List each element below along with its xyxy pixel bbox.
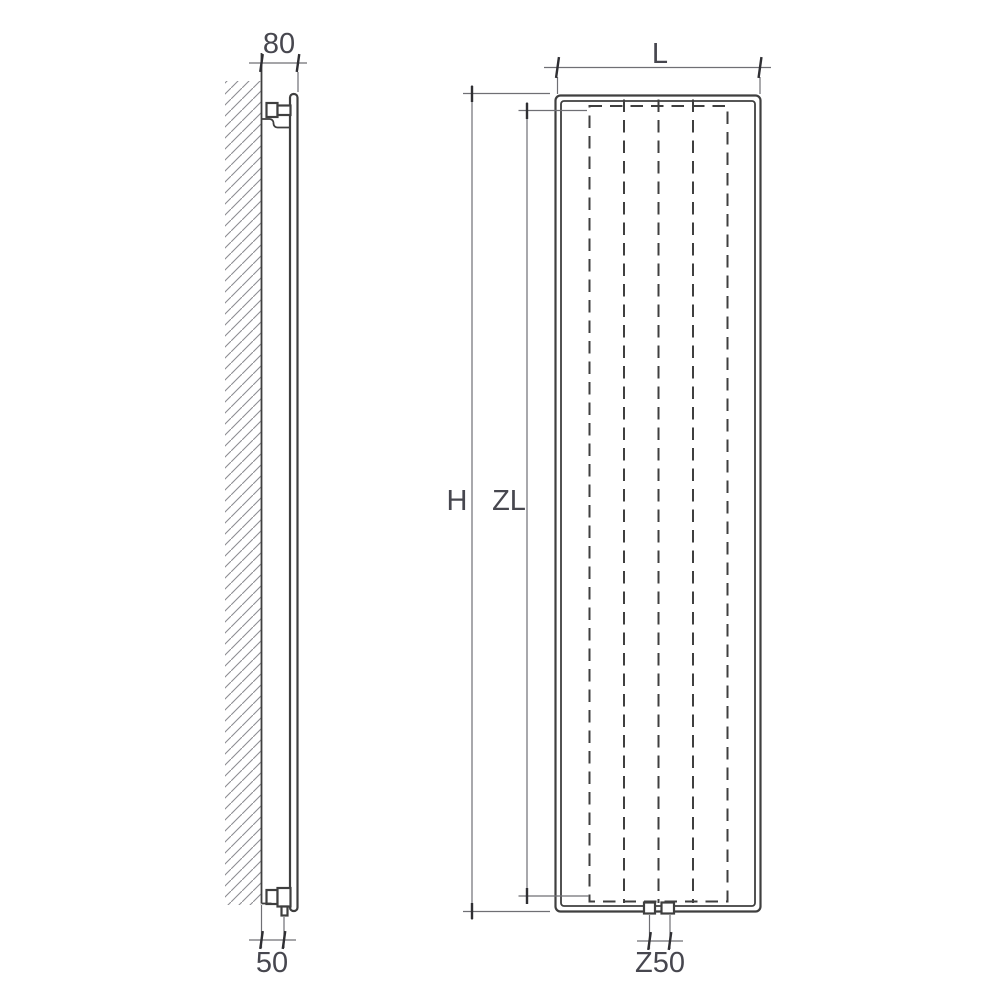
dimension-ZL-label: ZL <box>492 485 526 517</box>
wall-bracket-top <box>262 103 291 128</box>
bracket-block <box>267 103 278 117</box>
radiator-front-outline <box>556 96 761 912</box>
wall-bracket-bottom <box>262 888 291 916</box>
dimension-L-label: L <box>652 38 668 70</box>
side-view: 80 50 <box>225 28 307 979</box>
bracket-arm <box>278 888 291 907</box>
dimension-tick <box>556 57 559 78</box>
dimension-tick <box>297 54 300 72</box>
wall-hatch <box>225 81 261 905</box>
dimension-80-label: 80 <box>263 28 295 60</box>
pipe-connection-stub <box>662 903 675 914</box>
dimension-Z50-label: Z50 <box>635 947 685 979</box>
front-view: L H ZL Z50 <box>447 38 771 979</box>
dimension-H-label: H <box>447 485 468 517</box>
radiator-technical-drawing: 80 50 <box>0 0 1000 1000</box>
bracket-hook <box>262 119 291 128</box>
bracket-block <box>267 890 278 904</box>
dimension-50-label: 50 <box>256 947 288 979</box>
dimension-Z50: Z50 <box>635 915 685 979</box>
pipe-stub-side <box>282 907 288 916</box>
dimension-50: 50 <box>249 905 296 979</box>
dimension-tick <box>759 57 762 78</box>
bracket-arm <box>278 106 291 116</box>
radiator-panel-side <box>290 94 298 911</box>
dimension-L: L <box>544 38 771 94</box>
pipe-connection-stub <box>644 903 655 914</box>
technical-drawing-page: 80 50 <box>0 0 1000 1000</box>
